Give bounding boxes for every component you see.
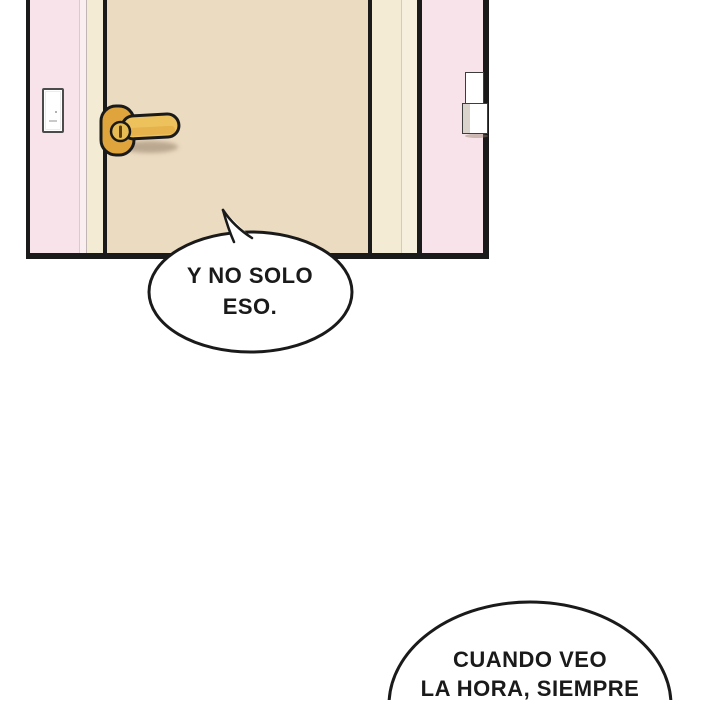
door-frame-right-face bbox=[402, 0, 417, 253]
door-hinge-bottom-plate bbox=[462, 103, 488, 134]
speech-line: Y NO SOLO bbox=[130, 260, 370, 291]
light-switch-rocker-line bbox=[49, 120, 57, 122]
comic-panel: Y NO SOLO ESO. CUANDO VEO LA HORA, SIEMP… bbox=[0, 0, 720, 700]
door-frame-right bbox=[372, 0, 401, 253]
door-hinge-top-plate bbox=[465, 72, 484, 105]
light-switch bbox=[42, 88, 64, 133]
door-hinge-shade bbox=[463, 104, 470, 133]
speech-line: ESO. bbox=[130, 291, 370, 322]
speech-bubble-2-text: CUANDO VEO LA HORA, SIEMPRE bbox=[390, 645, 670, 703]
light-switch-inner bbox=[45, 91, 61, 130]
speech-line: LA HORA, SIEMPRE bbox=[390, 674, 670, 703]
speech-bubble-1-text: Y NO SOLO ESO. bbox=[130, 260, 370, 322]
speech-line: CUANDO VEO bbox=[390, 645, 670, 674]
light-switch-screw-dot bbox=[55, 111, 57, 113]
door-hinge bbox=[461, 69, 491, 141]
door-hinge-shadow bbox=[465, 134, 488, 138]
door-handle-icon bbox=[95, 98, 190, 160]
